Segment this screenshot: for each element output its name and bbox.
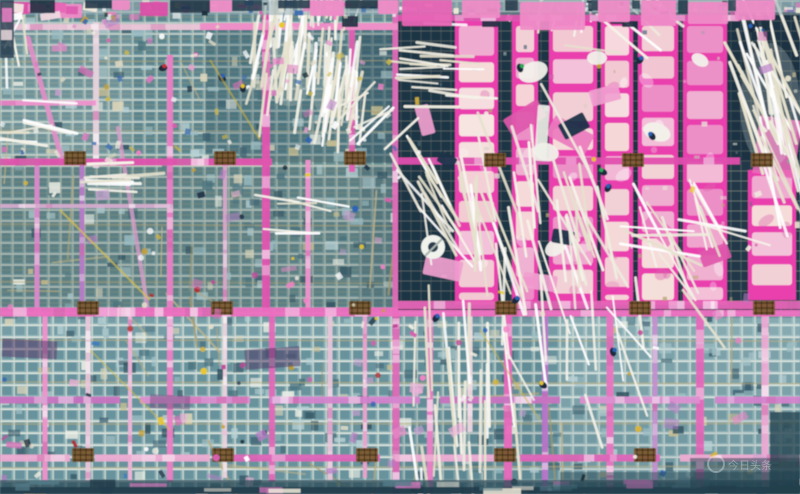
svg-text:今日头条: 今日头条 [728, 458, 772, 472]
